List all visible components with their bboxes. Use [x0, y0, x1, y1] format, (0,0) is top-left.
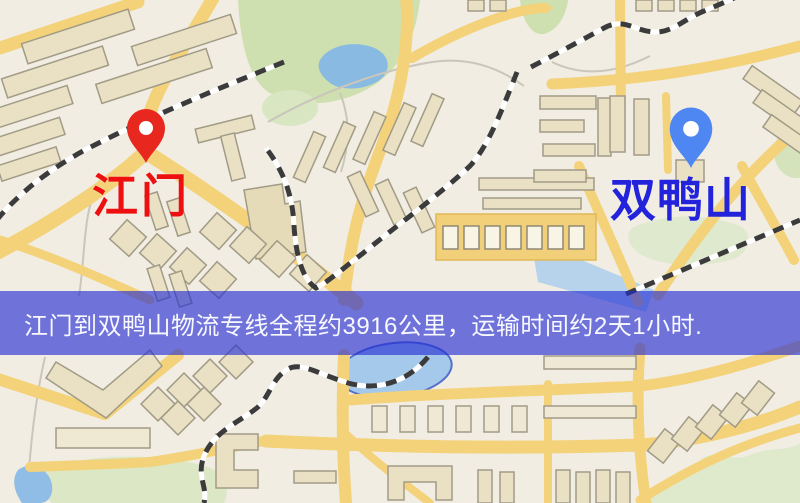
destination-city-label: 双鸭山: [610, 177, 751, 223]
route-info-text: 江门到双鸭山物流专线全程约3916公里，运输时间约2天1小时.: [24, 306, 702, 341]
origin-city-label: 江门: [92, 173, 190, 219]
logistics-route-map-page: 江门 双鸭山 江门到双鸭山物流专线全程约3916公里，运输时间约2天1小时.: [0, 0, 800, 503]
station-building: [436, 214, 596, 260]
route-info-banner: 江门到双鸭山物流专线全程约3916公里，运输时间约2天1小时.: [0, 291, 800, 355]
map-canvas[interactable]: [0, 0, 800, 503]
